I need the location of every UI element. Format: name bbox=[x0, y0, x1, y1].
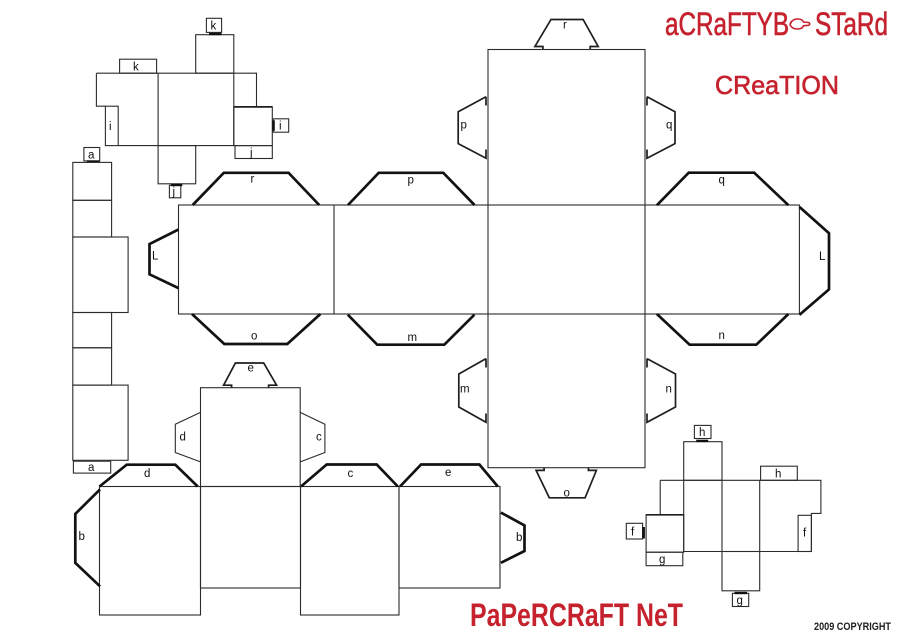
svg-text:b: b bbox=[79, 531, 85, 543]
svg-text:q: q bbox=[719, 175, 725, 187]
svg-text:c: c bbox=[316, 432, 322, 444]
svg-text:h: h bbox=[699, 427, 705, 439]
svg-text:a: a bbox=[88, 462, 95, 474]
svg-text:g: g bbox=[737, 595, 743, 607]
svg-text:L: L bbox=[152, 251, 159, 263]
svg-text:e: e bbox=[248, 363, 254, 375]
svg-text:m: m bbox=[408, 332, 418, 344]
svg-text:o: o bbox=[564, 488, 570, 500]
svg-text:PaPeRCRaFT NeT: PaPeRCRaFT NeT bbox=[470, 597, 683, 633]
svg-text:n: n bbox=[666, 384, 672, 396]
svg-text:q: q bbox=[666, 120, 672, 132]
svg-text:m: m bbox=[460, 384, 470, 396]
svg-text:d: d bbox=[180, 432, 186, 444]
svg-text:i: i bbox=[279, 121, 282, 133]
svg-text:e: e bbox=[445, 467, 451, 479]
svg-text:j: j bbox=[249, 148, 253, 160]
svg-text:k: k bbox=[133, 62, 139, 74]
svg-text:i: i bbox=[109, 121, 112, 133]
svg-text:2009 COPYRIGHT: 2009 COPYRIGHT bbox=[814, 621, 891, 633]
svg-text:o: o bbox=[251, 331, 257, 343]
svg-text:c: c bbox=[348, 468, 354, 480]
svg-text:STaRd: STaRd bbox=[815, 6, 888, 42]
svg-text:n: n bbox=[719, 330, 725, 342]
svg-text:k: k bbox=[211, 21, 217, 33]
svg-text:r: r bbox=[563, 20, 567, 32]
svg-text:p: p bbox=[408, 175, 414, 187]
svg-text:p: p bbox=[461, 120, 467, 132]
svg-text:r: r bbox=[251, 174, 255, 186]
svg-text:aCRaFTYB: aCRaFTYB bbox=[665, 6, 789, 42]
svg-text:L: L bbox=[819, 251, 826, 263]
svg-text:b: b bbox=[516, 532, 522, 544]
svg-text:CReaTION: CReaTION bbox=[715, 70, 839, 100]
svg-text:a: a bbox=[88, 150, 95, 162]
svg-text:j: j bbox=[172, 187, 176, 199]
svg-text:g: g bbox=[659, 554, 665, 566]
svg-text:h: h bbox=[775, 469, 781, 481]
svg-text:d: d bbox=[144, 468, 150, 480]
